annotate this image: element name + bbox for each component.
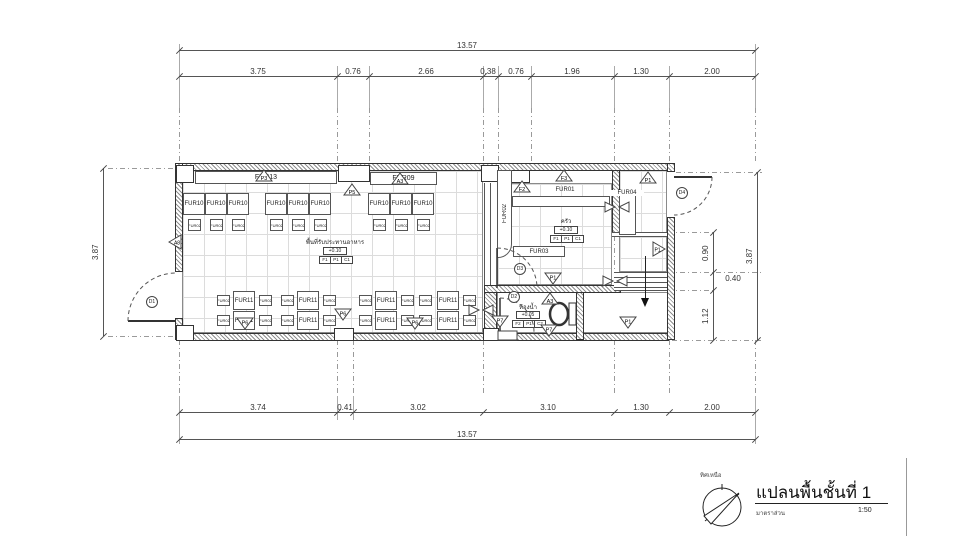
fur10-label: FUR10 [288,201,307,207]
kitchen-name: ครัว [546,216,586,226]
marker-triangle: P3 [255,169,273,182]
fur11-label: FUR11 [235,298,254,304]
extension-line [668,290,716,291]
fur11-label: FUR11 [299,318,318,324]
wall-bottom [179,333,669,341]
dim-top-seg: 2.66 [406,67,446,76]
bathroom-level: +0.05 [516,311,540,319]
marker-triangle: P7 [491,315,509,328]
extension-line [498,66,499,110]
grid-line [369,108,370,163]
dim-top-seg: 0.38 [479,67,497,76]
fur10-label: FUR10 [413,201,432,207]
north-label: ทิศเหนือ [700,470,721,480]
column [334,328,354,341]
dim-line-right-inner [713,232,714,340]
fur02-label: FUR02 [502,204,508,223]
scale-value: 1:50 [858,507,872,514]
marker-triangle: A3 [541,292,559,305]
chair-fur02: FUR02 [232,219,245,231]
door-tag-d1: D1 [146,296,158,308]
chair-fur02: FUR02 [217,295,230,306]
chair-fur02: FUR02 [217,315,230,326]
grid-line [614,108,615,163]
fur02-label: FUR02 [419,298,432,303]
fixture-bowtie-icon [468,304,494,316]
dim-right-seg: 0.40 [720,274,746,283]
grid-line [755,340,756,396]
grid-line [353,340,354,396]
marker-triangle: A3 [391,172,409,185]
table-fur10: FUR10 [183,193,205,215]
grid-line [669,108,670,163]
chair-fur02: FUR02 [401,295,414,306]
grid-line [669,340,670,396]
column [176,325,194,341]
wall-top [179,163,674,171]
fur02-label: FUR02 [259,318,272,323]
chair-fur02: FUR02 [259,295,272,306]
dim-line-top-total [179,50,755,51]
dining-finish-codes: F1P1C1 [320,256,353,264]
extension-line [672,340,762,341]
fur03-label: FUR03 [529,249,548,255]
fur02-label: FUR02 [359,298,372,303]
marker-label: P6 [242,321,249,327]
table-fur11: FUR11 [297,291,319,310]
fur02-label: FUR02 [417,223,430,228]
fur02-label: FUR02 [401,298,414,303]
column [483,328,499,341]
fur02-label: FUR02 [217,298,230,303]
marker-triangle: P1 [639,171,657,184]
counter-fur03: FUR03 [513,246,565,257]
dim-line-right-outer [757,172,758,340]
chair-fur02: FUR02 [281,295,294,306]
dim-right-seg: 0.90 [702,236,710,270]
marker-label: P1 [625,320,632,326]
dim-bottom-seg: 2.00 [692,403,732,412]
fur10-label: FUR10 [391,201,410,207]
fur10-label: FUR10 [184,201,203,207]
marker-label: A8 [174,241,180,247]
marker-label: P6 [340,312,347,318]
finish-code: C1 [572,235,584,243]
fur02-label: FUR02 [210,223,223,228]
scale-label: มาตราส่วน [756,508,785,518]
marker-label: P5 [349,190,356,196]
chair-fur02: FUR02 [359,295,372,306]
marker-triangle: F3 [555,169,573,182]
extension-line [614,66,615,110]
finish-code: C1 [341,256,353,264]
dim-bottom-seg: 3.74 [238,403,278,412]
title-underline [755,503,888,504]
grid-line [614,340,615,396]
door-tag-d4: D4 [676,187,688,199]
marker-triangle: A8 [168,234,182,250]
fur02-label: FUR02 [281,298,294,303]
fur10-label: FUR10 [266,201,285,207]
floor-plan-sheet: { "sheet": { "title": "แปลนพื้นชั้นที่ 1… [0,0,960,539]
counter-kitchen-top [512,196,610,207]
table-fur11: FUR11 [233,291,255,310]
fur11-label: FUR11 [439,298,458,304]
table-fur10: FUR10 [412,193,434,215]
sheet-title: แปลนพื้นชั้นที่ 1 [756,479,871,506]
chair-fur02: FUR02 [314,219,327,231]
chair-fur02: FUR02 [359,315,372,326]
grid-line [483,340,484,396]
dim-top-seg: 3.75 [238,67,278,76]
fur10-label: FUR10 [310,201,329,207]
wall-bath-right [576,292,584,340]
marker-label: P1 [654,248,660,254]
fur11-label: FUR11 [299,298,318,304]
wall-right-top-stub [667,163,675,172]
dim-right-seg: 1.12 [702,298,710,334]
extension-line [108,336,176,337]
grid-line [755,108,756,163]
fur02-label: FUR02 [359,318,372,323]
wall-right [667,217,675,340]
fur01-label: FUR01 [546,187,584,193]
fixture-bowtie-icon [602,275,628,287]
fixture-bowtie-icon [604,201,630,213]
extension-line [676,172,762,173]
dim-top-seg: 0.76 [507,67,525,76]
fur11-label: FUR11 [439,318,458,324]
column [176,165,194,183]
table-fur10: FUR10 [390,193,412,215]
door-tag-d2: D2 [508,291,520,303]
wall-dining-kitchen [484,183,491,286]
dim-top-seg: 1.96 [552,67,592,76]
door-tag-d3: D3 [514,263,526,275]
marker-label: P7 [497,319,504,325]
extension-line [531,66,532,110]
table-fur10: FUR10 [205,193,227,215]
kitchen-level: +0.10 [554,226,578,234]
grid-line [483,108,484,163]
fur02-label: FUR02 [463,298,476,303]
dim-bottom-total: 13.57 [447,430,487,439]
grid-line [179,108,180,163]
extension-line [669,66,670,110]
dim-bottom-seg: 3.10 [528,403,568,412]
marker-label: P3 [261,176,268,182]
marker-label: P1 [550,276,557,282]
fur02-label: FUR02 [373,223,386,228]
chair-fur02: FUR02 [210,219,223,231]
fur11-label: FUR11 [377,298,396,304]
dim-right-total: 3.87 [746,236,754,276]
grid-line [498,108,499,163]
grid-line [337,340,338,396]
dining-level: +0.10 [323,247,347,255]
dim-top-seg: 0.76 [333,67,373,76]
chair-fur02: FUR02 [270,219,283,231]
table-fur11: FUR11 [437,311,459,330]
title-block-divider [906,458,907,536]
extension-line [668,232,716,233]
fur02-label: FUR02 [314,223,327,228]
table-fur10: FUR10 [368,193,390,215]
dim-top-seg: 1.30 [621,67,661,76]
dim-bottom-seg: 0.41 [336,403,354,412]
marker-label: F2 [519,187,525,193]
table-fur10: FUR10 [265,193,287,215]
fur02-label: FUR02 [188,223,201,228]
table-fur11: FUR11 [375,311,397,330]
fur02-label: FUR02 [281,318,294,323]
table-fur11: FUR11 [375,291,397,310]
chair-fur02: FUR02 [292,219,305,231]
fur02-label: FUR02 [232,223,245,228]
dim-line-left [103,168,104,336]
fur02-label: FUR02 [395,223,408,228]
fur02-label: FUR02 [323,298,336,303]
fur02-label: FUR02 [463,318,476,323]
marker-triangle: P6 [236,317,254,330]
chair-fur02: FUR02 [417,219,430,231]
dim-top-total: 13.57 [447,41,487,50]
fur02-label: FUR02 [259,298,272,303]
table-fur10: FUR10 [287,193,309,215]
marker-label: P1 [645,178,652,184]
marker-label: P6 [412,321,419,327]
fur11-label: FUR11 [377,318,396,324]
chair-fur02: FUR02 [419,295,432,306]
marker-triangle: P1 [619,316,637,329]
marker-label: P7 [546,328,553,334]
extension-line [108,168,176,169]
stair-direction-line [645,256,646,300]
marker-label: A3 [397,179,404,185]
fur02-label: FUR02 [292,223,305,228]
chair-fur02: FUR02 [281,315,294,326]
marker-triangle: P6 [334,308,352,321]
dim-line-bottom-total [179,439,755,440]
north-arrow-icon [698,480,746,530]
marker-label: A3 [547,299,554,305]
grid-line [337,108,338,163]
table-fur10: FUR10 [227,193,249,215]
dim-left-total: 3.87 [92,232,100,272]
chair-fur02: FUR02 [395,219,408,231]
fur10-label: FUR10 [369,201,388,207]
tick [100,333,107,340]
fur10-label: FUR10 [228,201,247,207]
column [338,165,370,182]
chair-fur02: FUR02 [188,219,201,231]
chair-fur02: FUR02 [463,315,476,326]
table-fur11: FUR11 [297,311,319,330]
grid-line [531,108,532,163]
fur04-label: FUR04 [610,190,644,196]
fur02-label: FUR02 [270,223,283,228]
dim-bottom-seg: 3.02 [398,403,438,412]
dim-top-seg: 2.00 [692,67,732,76]
counter-fur02-vertical: FUR02 [497,170,512,258]
marker-label: F3 [561,176,567,182]
marker-triangle: P6 [406,317,424,330]
fur10-label: FUR10 [206,201,225,207]
fur02-label: FUR02 [217,318,230,323]
chair-fur02: FUR02 [323,295,336,306]
chair-fur02: FUR02 [259,315,272,326]
table-fur10: FUR10 [309,193,331,215]
dim-bottom-seg: 1.30 [621,403,661,412]
table-fur11: FUR11 [437,291,459,310]
kitchen-finish-codes: F1P1C1 [551,235,584,243]
marker-triangle: P7 [540,324,558,337]
dining-room-name: พื้นที่รับประทานอาหาร [285,237,385,247]
chair-fur02: FUR02 [373,219,386,231]
grid-line [179,340,180,396]
marker-triangle: P1 [544,272,562,285]
marker-triangle: P1 [652,241,666,257]
marker-triangle: F2 [513,180,531,193]
marker-triangle: P5 [343,183,361,196]
